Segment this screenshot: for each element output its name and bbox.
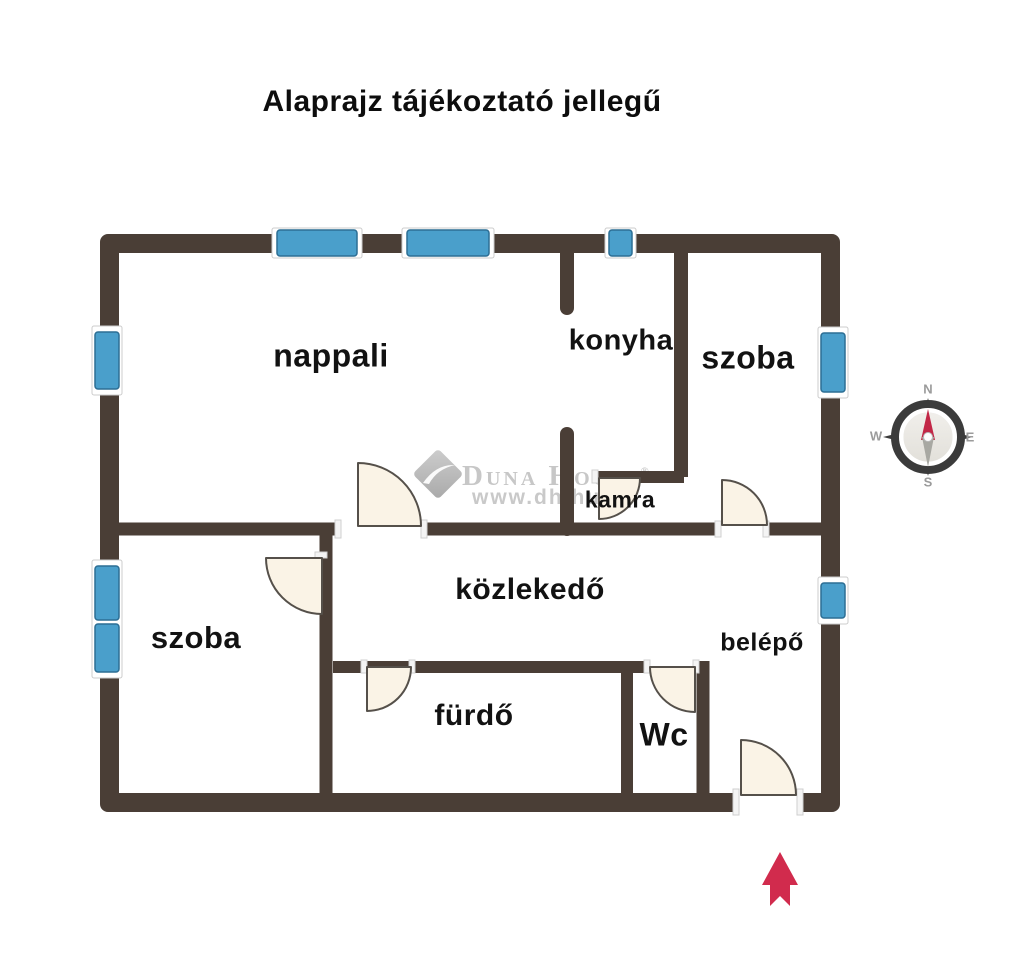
door-szoba-right (722, 480, 767, 525)
door-wc (650, 667, 695, 712)
compass-label-north: N (923, 382, 932, 397)
entrance-opening (737, 788, 799, 817)
room-label-furdo: fürdő (434, 699, 513, 733)
watermark-url: www.dh.hu (472, 486, 601, 510)
room-label-szoba-bottom: szoba (151, 620, 241, 656)
door-furdo (367, 667, 411, 711)
compass-label-west: W (870, 429, 882, 444)
door-szoba-left (266, 558, 322, 614)
page-title: Alaprajz tájékoztató jellegű (262, 85, 661, 119)
door-entrance (741, 740, 796, 795)
compass-label-south: S (924, 475, 933, 490)
watermark-logo-icon (413, 449, 464, 500)
window-left-upper (95, 332, 119, 389)
compass-rose-icon (883, 398, 973, 476)
window-top-1 (277, 230, 357, 256)
compass-needle-south (922, 437, 934, 467)
window-right-lower (821, 583, 845, 618)
room-label-kamra: kamra (585, 487, 655, 514)
window-frames (92, 228, 848, 678)
windows (92, 228, 848, 678)
room-label-nappali: nappali (273, 338, 389, 375)
room-label-wc: Wc (640, 717, 689, 754)
compass-label-east: E (966, 430, 975, 445)
doors (266, 463, 796, 795)
door-nappali (358, 463, 421, 526)
window-right-upper (821, 333, 845, 392)
room-label-szoba-top: szoba (701, 340, 794, 377)
window-left-lower-b (95, 624, 119, 672)
registered-mark: ® (641, 465, 649, 477)
window-top-2 (407, 230, 489, 256)
entrance-arrow-icon (762, 852, 798, 906)
room-label-kozlekedo: közlekedő (455, 573, 605, 607)
room-label-konyha: konyha (569, 325, 674, 358)
floorplan-page: Duna House® www.dh.hu (0, 0, 1024, 960)
compass-needle-north (921, 409, 935, 440)
room-label-belepo: belépő (720, 629, 804, 658)
window-left-lower-a (95, 566, 119, 620)
window-top-3 (609, 230, 632, 256)
